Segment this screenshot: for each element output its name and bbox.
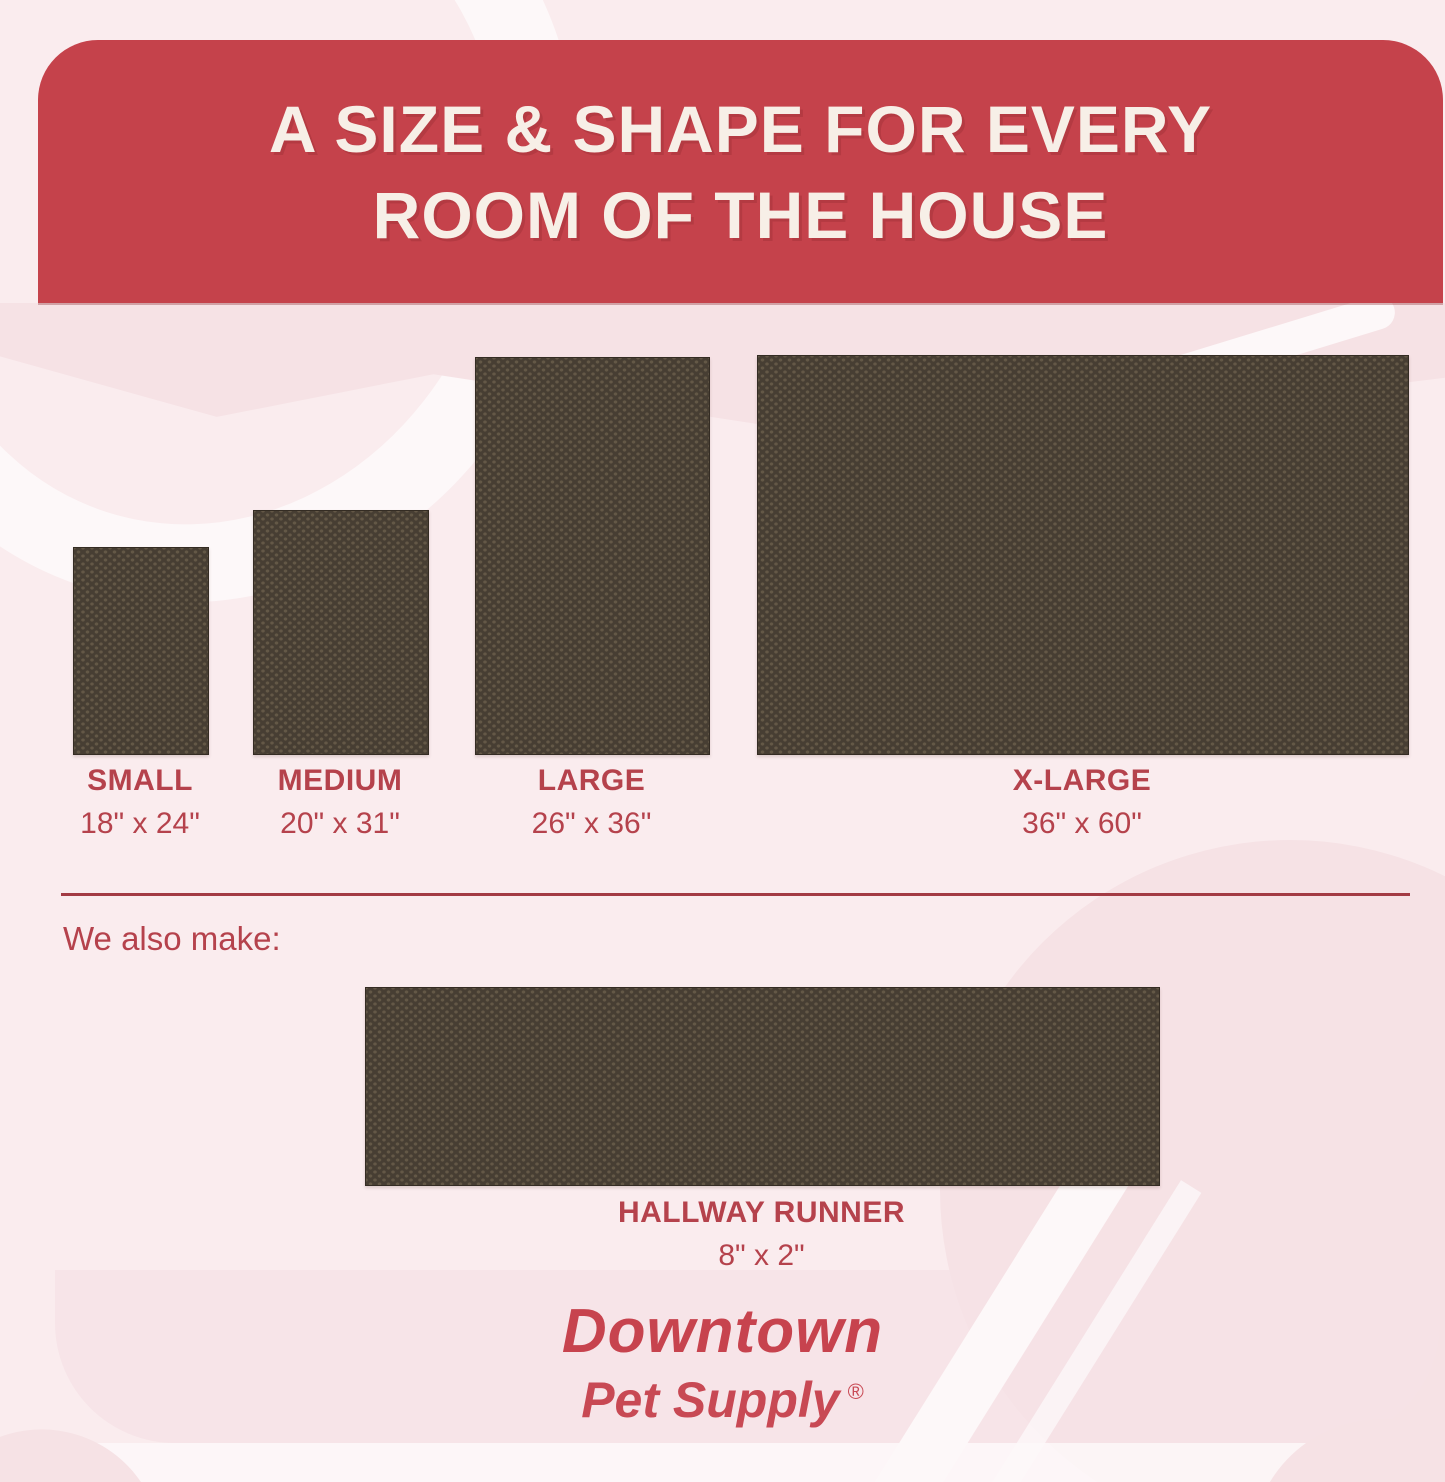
size-name: X-LARGE: [757, 764, 1407, 798]
label-xlarge: X-LARGE 36" x 60": [757, 764, 1407, 841]
mat-large: [475, 357, 710, 755]
brand-name: Downtown: [0, 1300, 1445, 1364]
label-small: SMALL 18" x 24": [73, 764, 207, 841]
size-name: HALLWAY RUNNER: [365, 1196, 1158, 1230]
label-medium: MEDIUM 20" x 31": [253, 764, 427, 841]
size-dims: 26" x 36": [475, 807, 708, 841]
brand-logo: Downtown Pet Supply®: [0, 1300, 1445, 1428]
title-line-2: ROOM OF THE HOUSE: [373, 172, 1109, 258]
size-name: MEDIUM: [253, 764, 427, 798]
size-dims: 8" x 2": [365, 1239, 1158, 1273]
also-make-label: We also make:: [63, 920, 281, 958]
header-banner: A SIZE & SHAPE FOR EVERY ROOM OF THE HOU…: [38, 40, 1443, 303]
mat-xlarge: [757, 355, 1409, 755]
label-large: LARGE 26" x 36": [475, 764, 708, 841]
mat-hallway-runner: [365, 987, 1160, 1186]
title-line-1: A SIZE & SHAPE FOR EVERY: [269, 86, 1212, 172]
brand-subtitle-text: Pet Supply: [581, 1372, 839, 1428]
mat-small: [73, 547, 209, 755]
size-name: SMALL: [73, 764, 207, 798]
registered-mark: ®: [848, 1379, 864, 1404]
decor-bottom-strip: [0, 1443, 1445, 1482]
size-dims: 36" x 60": [757, 807, 1407, 841]
brand-subtitle: Pet Supply®: [0, 1364, 1445, 1428]
size-dims: 18" x 24": [73, 807, 207, 841]
size-name: LARGE: [475, 764, 708, 798]
size-dims: 20" x 31": [253, 807, 427, 841]
size-guide-infographic: A SIZE & SHAPE FOR EVERY ROOM OF THE HOU…: [0, 0, 1445, 1482]
mat-medium: [253, 510, 429, 755]
divider-line: [61, 893, 1410, 896]
label-hallway-runner: HALLWAY RUNNER 8" x 2": [365, 1196, 1158, 1273]
